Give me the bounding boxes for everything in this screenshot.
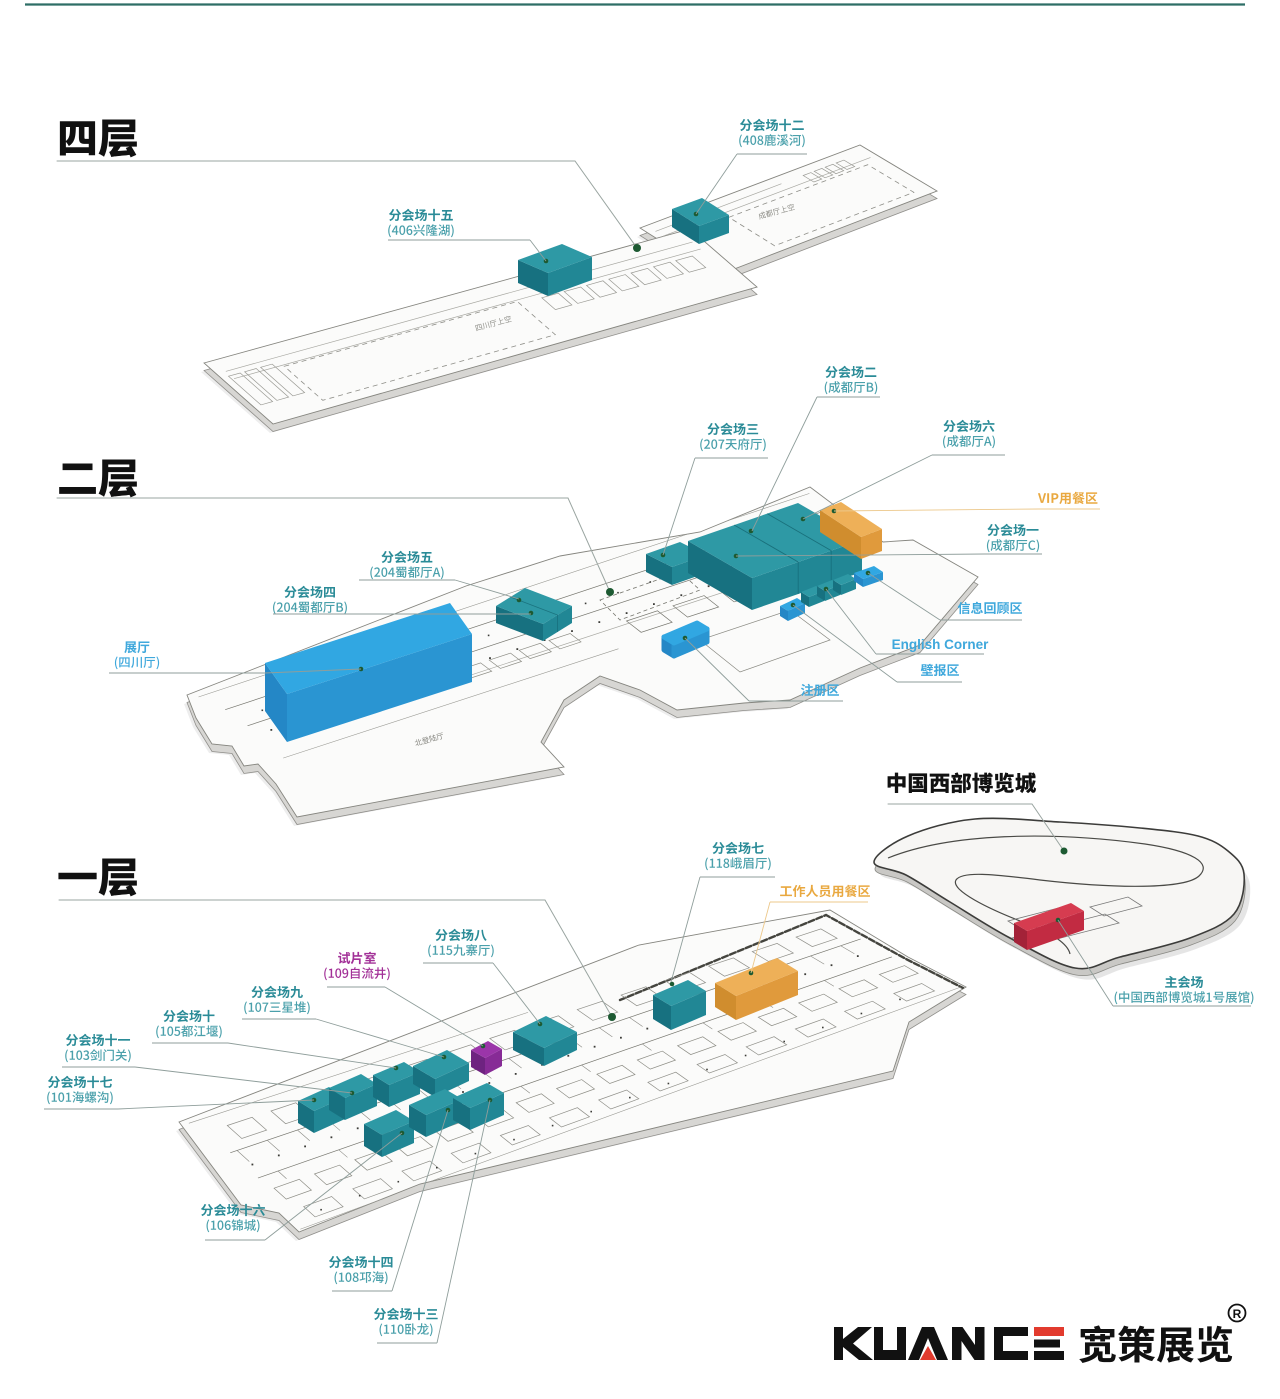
- svg-text:English Corner: English Corner: [892, 637, 990, 652]
- svg-text:R: R: [1233, 1307, 1242, 1321]
